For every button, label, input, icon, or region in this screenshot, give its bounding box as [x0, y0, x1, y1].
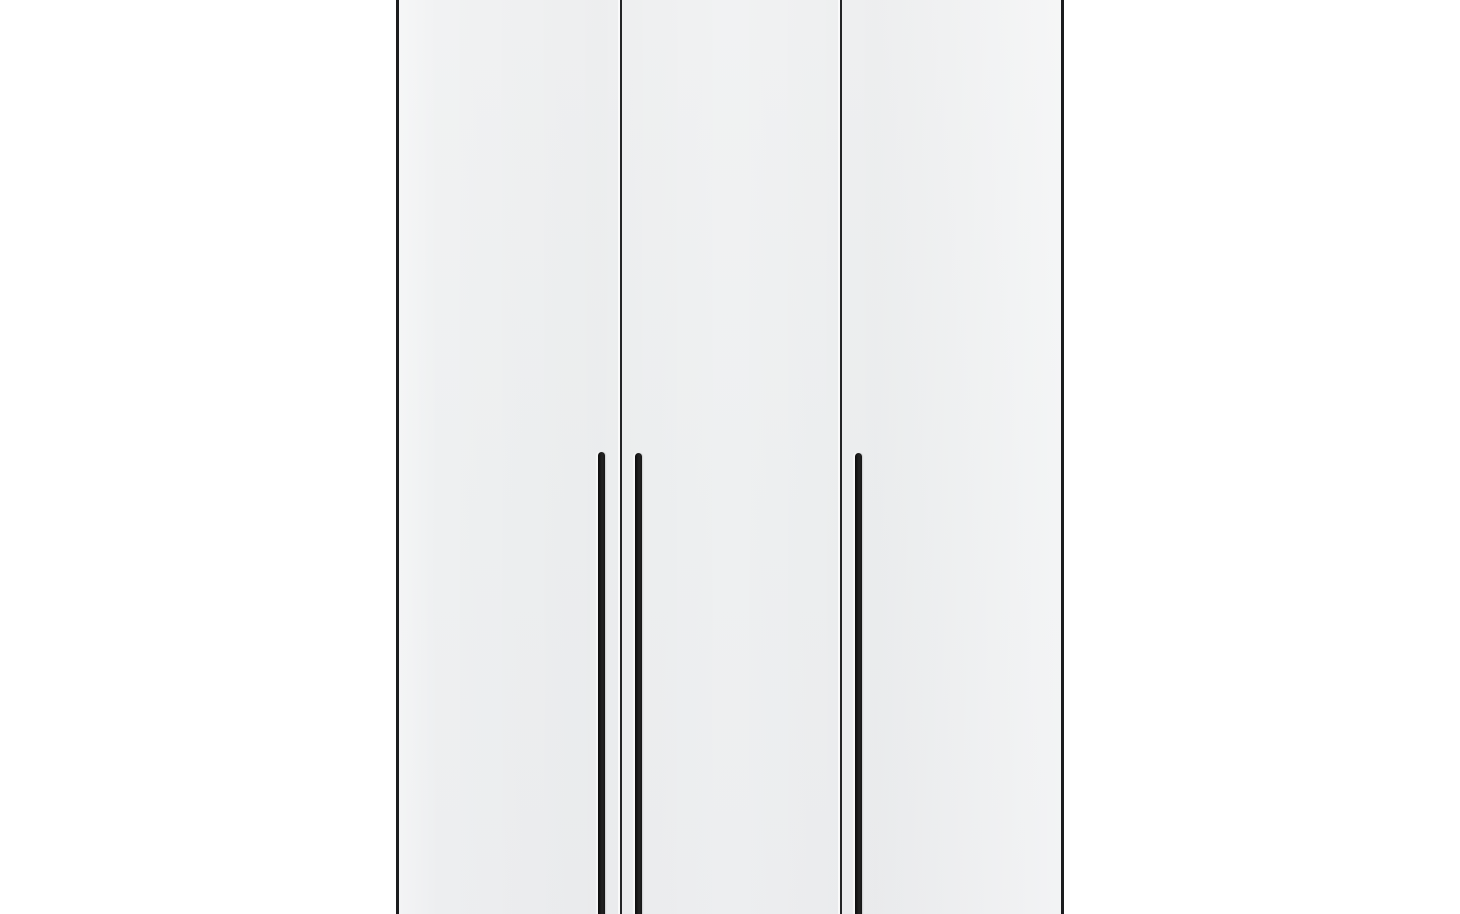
- door-handle-middle-door: [635, 453, 642, 914]
- wardrobe: [396, 0, 1064, 914]
- door-seam-left: [620, 0, 622, 914]
- door-handle-right-door: [855, 453, 862, 914]
- door-handle-left-door: [598, 452, 605, 914]
- product-image-canvas: [0, 0, 1460, 914]
- wardrobe-door-right: [840, 0, 1061, 914]
- wardrobe-door-middle: [620, 0, 841, 914]
- wardrobe-doors: [399, 0, 1061, 914]
- wardrobe-door-left: [399, 0, 620, 914]
- door-seam-right: [840, 0, 842, 914]
